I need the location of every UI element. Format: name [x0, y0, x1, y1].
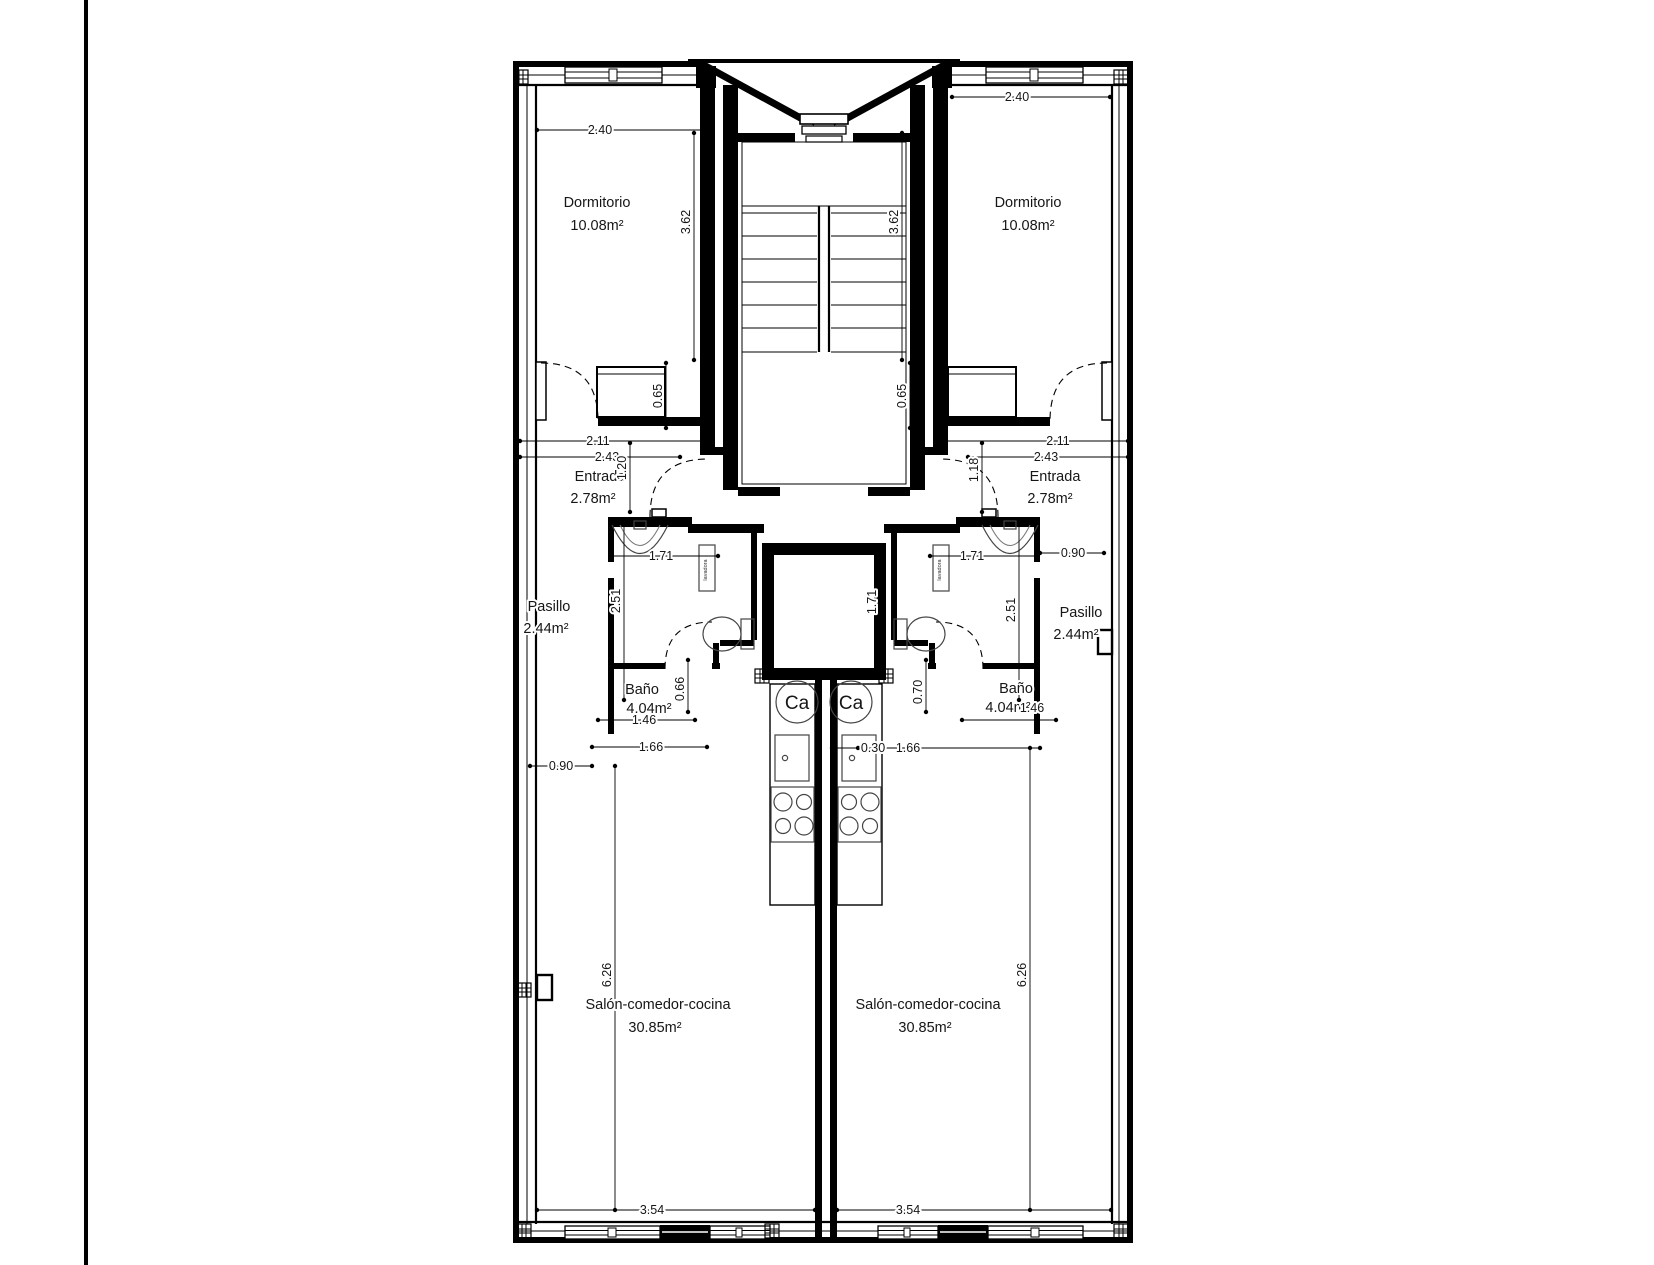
dim-entry-w2-right: 2.43 — [1034, 450, 1058, 464]
room-label-dormitorio-right: Dormitorio — [995, 195, 1062, 211]
room-label-entrada-right: Entrada — [1030, 469, 1082, 485]
dim-bath-width-right: 1.71 — [960, 549, 984, 563]
dim-entry-depth-left: 1.20 — [615, 456, 629, 480]
dim-salon-depth-right: 6.26 — [1015, 963, 1029, 987]
bedroom-door-left — [536, 362, 598, 421]
dim-counter-gap-right: 0.30 — [861, 741, 885, 755]
boiler-label-right: Ca — [839, 693, 864, 714]
room-label-bano-left: Baño — [625, 682, 659, 698]
closet-right — [948, 367, 1016, 417]
dim-kitchen-width-right: 1.66 — [896, 741, 920, 755]
room-area-salon-right: 30.85m² — [898, 1020, 951, 1036]
dim-bath-width-v-right: 1.71 — [865, 590, 879, 614]
dim-bed-width-left: 2.40 — [588, 123, 612, 137]
dim-closet-depth-left: 0.65 — [651, 384, 665, 408]
washer-label-right: lavadora — [937, 559, 943, 581]
dim-bed-depth-right: 3.62 — [887, 210, 901, 234]
room-label-salon-right: Salón-comedor-cocina — [855, 997, 1001, 1013]
dim-bed-depth-left: 3.62 — [679, 210, 693, 234]
room-area-pasillo-left: 2.44m² — [523, 621, 568, 637]
room-area-dormitorio-right: 10.08m² — [1001, 218, 1054, 234]
room-label-pasillo-left: Pasillo — [528, 599, 571, 615]
room-label-salon-left: Salón-comedor-cocina — [585, 997, 731, 1013]
room-area-pasillo-right: 2.44m² — [1053, 627, 1098, 643]
dim-bath-door-left: 0.66 — [673, 677, 687, 701]
dim-kitchen-width-left: 1.66 — [639, 740, 663, 754]
kitchen-sink-left — [775, 735, 809, 781]
room-label-bano-right: Baño — [999, 681, 1033, 697]
kitchen-right — [830, 681, 882, 905]
dim-closet-depth-right: 0.65 — [895, 384, 909, 408]
cooktop-left — [771, 787, 814, 842]
room-area-entrada-left: 2.78m² — [570, 491, 615, 507]
boiler-label-left: Ca — [785, 693, 810, 714]
dim-bath-depth-left: 2.51 — [609, 589, 623, 613]
window-bottom-left-a — [565, 1226, 660, 1239]
dim-salon-width-right: 3.54 — [896, 1203, 920, 1217]
dim-pass-width-left: 0.90 — [549, 759, 573, 773]
drawing-sheet: Dormitorio 10.08m² Entrada 2.78m² Pasill… — [0, 0, 1654, 1265]
dim-salon-width-left: 3.54 — [640, 1203, 664, 1217]
dim-entry-w1-right: 2.11 — [1046, 434, 1069, 448]
dim-bath-inner-left: 1.46 — [632, 713, 656, 727]
stair-treads — [742, 206, 906, 352]
dim-pass-width-right: 0.90 — [1061, 546, 1085, 560]
dim-entry-depth-right: 1.18 — [967, 458, 981, 482]
room-label-pasillo-right: Pasillo — [1060, 605, 1103, 621]
window-bottom-left-b — [710, 1226, 770, 1239]
window-bottom-right-a — [988, 1226, 1083, 1239]
window-bottom-right-b — [878, 1226, 938, 1239]
dim-bath-width-left: 1.71 — [649, 549, 673, 563]
room-area-entrada-right: 2.78m² — [1027, 491, 1072, 507]
room-label-dormitorio-left: Dormitorio — [564, 195, 631, 211]
dim-entry-w1-left: 2.11 — [586, 434, 609, 448]
window-top-right — [986, 67, 1083, 83]
dim-bath-door-right: 0.70 — [911, 680, 925, 704]
wall-niche-left — [537, 975, 552, 1000]
stairwell — [723, 85, 925, 496]
entrance-door — [800, 114, 848, 142]
wall-niche-right — [1098, 630, 1112, 654]
bath-door-right — [936, 622, 983, 669]
room-area-salon-left: 30.85m² — [628, 1020, 681, 1036]
window-top-left — [565, 67, 662, 83]
dim-bed-width-right: 2.40 — [1005, 90, 1029, 104]
kitchen-left — [770, 681, 818, 905]
dim-bath-depth-right: 2.51 — [1004, 598, 1018, 622]
washer-label-left: lavadora — [703, 559, 709, 581]
dim-salon-depth-left: 6.26 — [600, 963, 614, 987]
dim-bath-inner-right: 1.46 — [1020, 701, 1044, 715]
bedroom-door-right — [1050, 362, 1112, 421]
room-area-dormitorio-left: 10.08m² — [570, 218, 623, 234]
floor-plan-drawing: Dormitorio 10.08m² Entrada 2.78m² Pasill… — [0, 0, 1654, 1265]
cooktop-right — [838, 787, 881, 842]
